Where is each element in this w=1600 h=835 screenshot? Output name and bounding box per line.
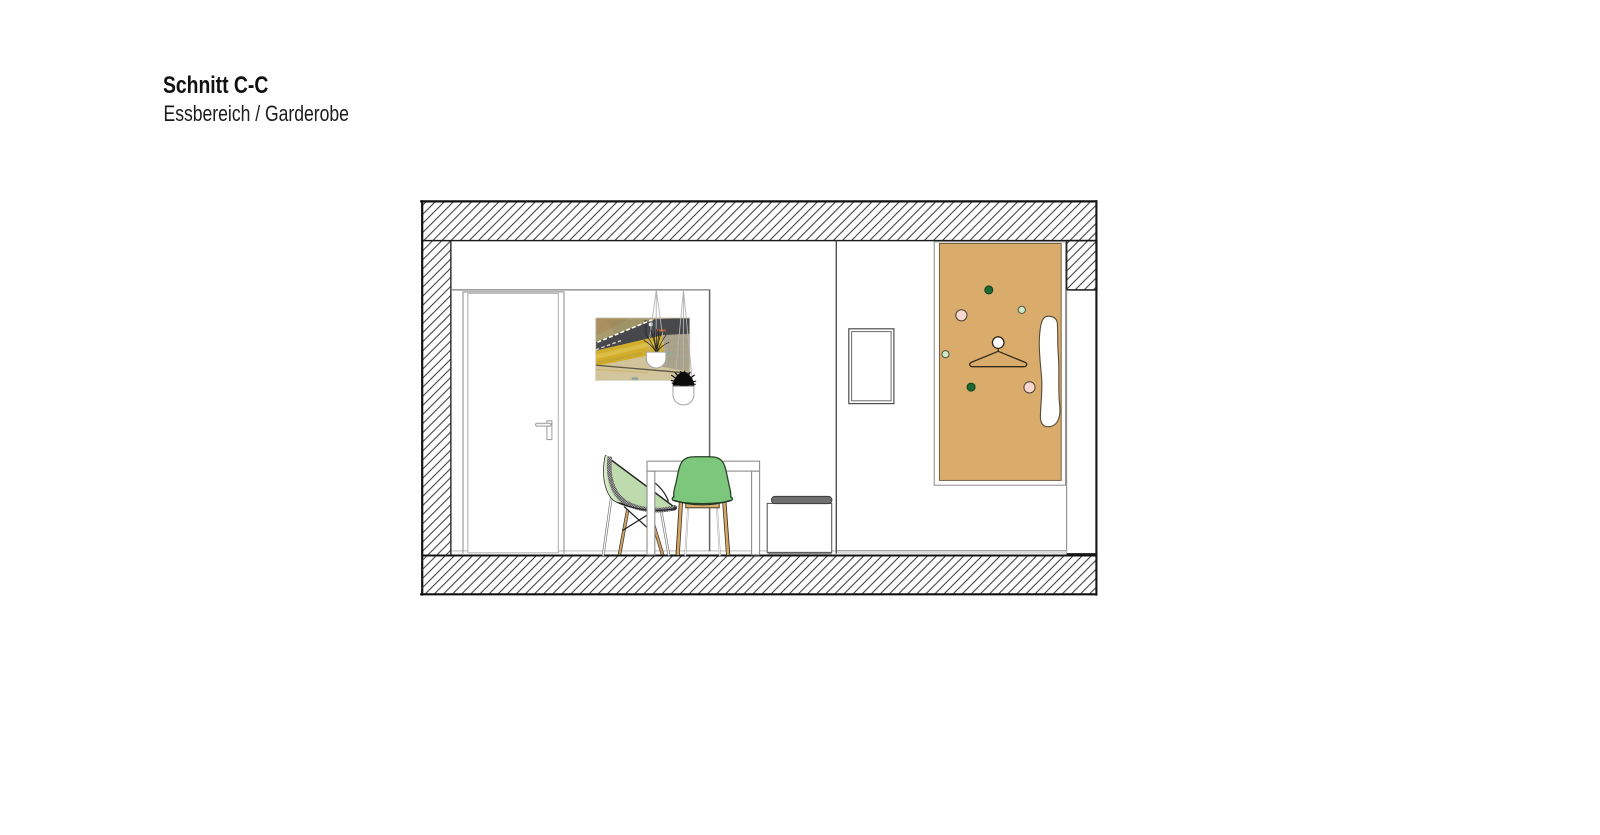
svg-text:Essbereich / Garderobe: Essbereich / Garderobe [164,102,349,127]
svg-text:Schnitt C-C: Schnitt C-C [163,71,268,99]
